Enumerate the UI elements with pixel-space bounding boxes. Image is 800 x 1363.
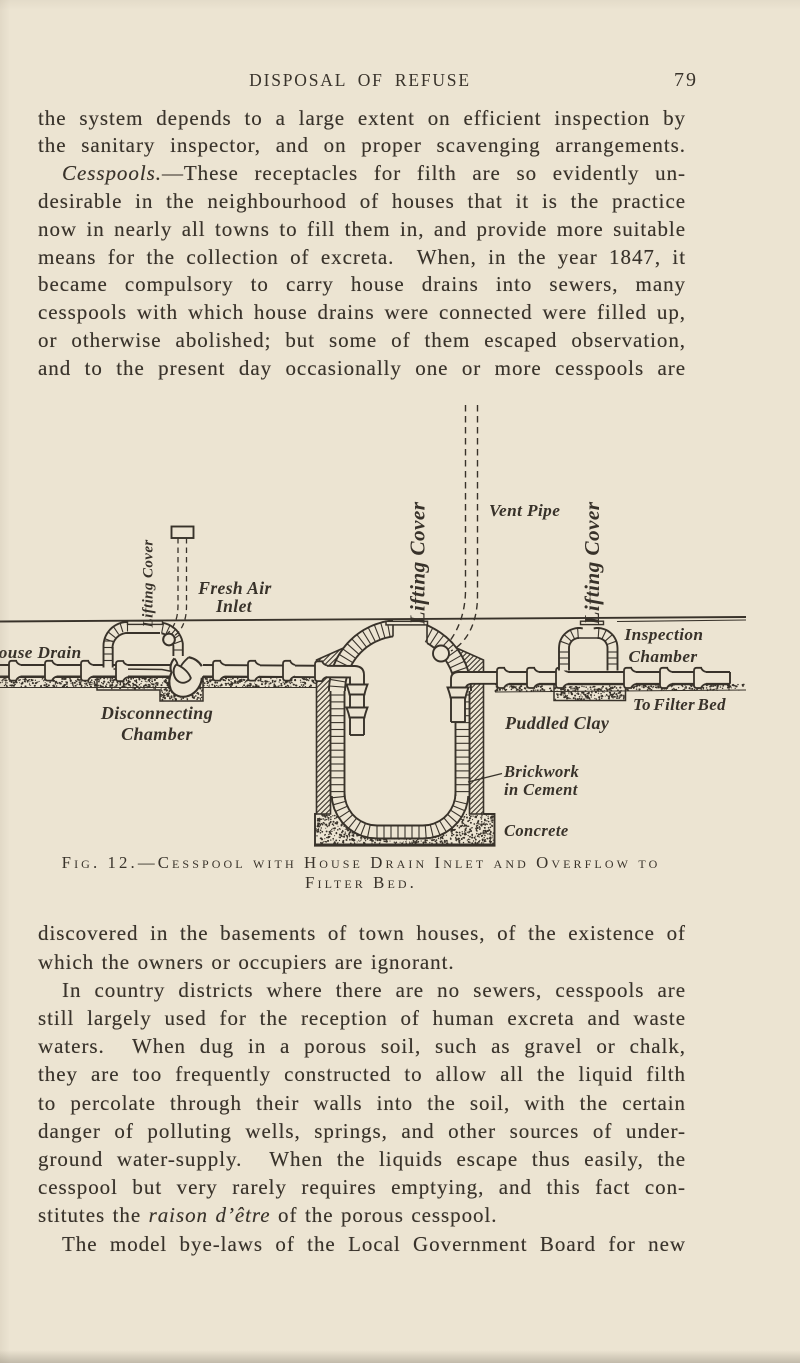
svg-text:To Filter Bed: To Filter Bed <box>633 695 726 714</box>
svg-text:Lifting Cover: Lifting Cover <box>406 501 430 625</box>
svg-text:in Cement: in Cement <box>504 780 578 799</box>
svg-text:Concrete: Concrete <box>504 821 569 840</box>
svg-text:Chamber: Chamber <box>121 724 193 744</box>
svg-text:Lifting Cover: Lifting Cover <box>141 539 157 628</box>
svg-text:House Drain: House Drain <box>0 643 82 662</box>
svg-text:Puddled Clay: Puddled Clay <box>504 713 610 733</box>
svg-text:Inspection: Inspection <box>624 625 704 644</box>
svg-text:Inlet: Inlet <box>215 596 253 616</box>
svg-text:Brickwork: Brickwork <box>503 762 579 781</box>
svg-text:Fresh Air: Fresh Air <box>197 578 271 598</box>
svg-text:Disconnecting: Disconnecting <box>100 703 213 723</box>
svg-text:Chamber: Chamber <box>628 647 697 666</box>
svg-text:Lifting Cover: Lifting Cover <box>580 501 604 625</box>
svg-text:Vent Pipe: Vent Pipe <box>489 501 560 520</box>
